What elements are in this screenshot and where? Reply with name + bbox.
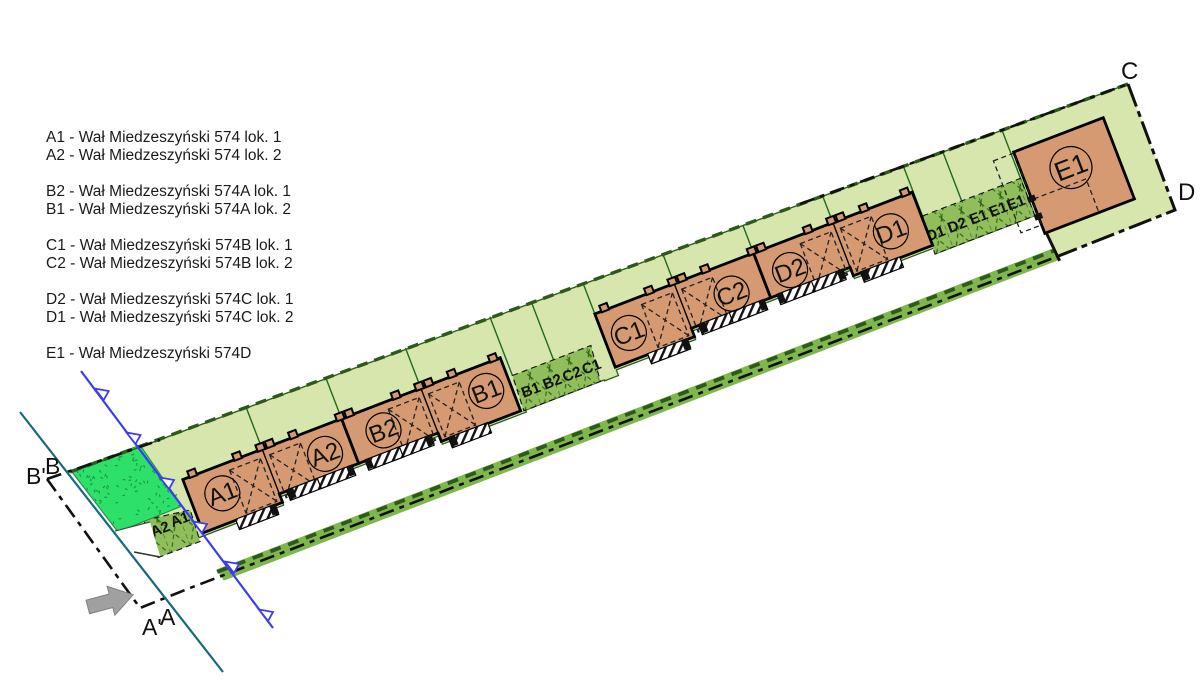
svg-text:E1 - Wał Miedzeszyński 574D: E1 - Wał Miedzeszyński 574D [46,345,251,362]
svg-text:D1 - Wał Miedzeszyński 574C lo: D1 - Wał Miedzeszyński 574C lok. 2 [46,309,294,326]
svg-text:B2 - Wał Miedzeszyński 574A lo: B2 - Wał Miedzeszyński 574A lok. 1 [46,183,291,200]
svg-text:C1 - Wał Miedzeszyński 574B lo: C1 - Wał Miedzeszyński 574B lok. 1 [46,237,293,254]
svg-text:D: D [1178,179,1195,206]
svg-text:B1 - Wał Miedzeszyński 574A lo: B1 - Wał Miedzeszyński 574A lok. 2 [46,201,291,218]
svg-text:A': A' [142,614,162,640]
svg-text:D2 - Wał Miedzeszyński 574C lo: D2 - Wał Miedzeszyński 574C lok. 1 [46,291,294,308]
svg-text:A: A [160,604,176,630]
svg-text:B': B' [26,463,46,489]
svg-text:A2 - Wał Miedzeszyński 574 lok: A2 - Wał Miedzeszyński 574 lok. 2 [46,147,281,164]
svg-text:C2 - Wał Miedzeszyński 574B lo: C2 - Wał Miedzeszyński 574B lok. 2 [46,255,293,272]
svg-text:B: B [45,453,60,479]
svg-text:A1 - Wał Miedzeszyński 574 lok: A1 - Wał Miedzeszyński 574 lok. 1 [46,129,281,146]
svg-text:C: C [1121,58,1138,85]
